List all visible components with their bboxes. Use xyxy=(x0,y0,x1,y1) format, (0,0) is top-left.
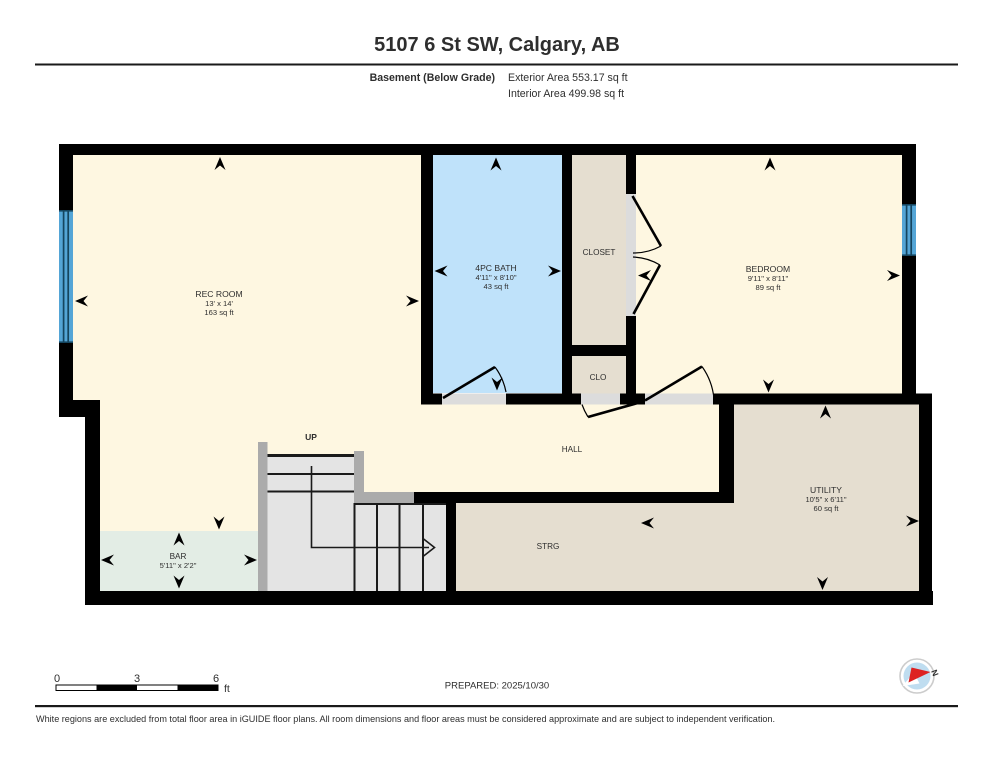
svg-text:4PC BATH: 4PC BATH xyxy=(475,263,516,273)
svg-text:STRG: STRG xyxy=(537,542,560,551)
svg-text:REC ROOM: REC ROOM xyxy=(195,289,242,299)
svg-text:BAR: BAR xyxy=(170,552,187,561)
svg-text:9'11" x 8'11": 9'11" x 8'11" xyxy=(748,274,789,283)
svg-text:60 sq ft: 60 sq ft xyxy=(814,504,840,513)
svg-text:PREPARED: 2025/10/30: PREPARED: 2025/10/30 xyxy=(445,681,549,692)
svg-text:5'11" x 2'2": 5'11" x 2'2" xyxy=(160,561,197,570)
svg-text:6: 6 xyxy=(213,673,219,685)
svg-text:3: 3 xyxy=(134,673,140,685)
svg-text:CLO: CLO xyxy=(590,373,607,382)
svg-text:CLOSET: CLOSET xyxy=(583,248,616,257)
svg-text:BEDROOM: BEDROOM xyxy=(746,264,790,274)
svg-text:White regions are excluded fro: White regions are excluded from total fl… xyxy=(36,714,775,724)
svg-text:89 sq ft: 89 sq ft xyxy=(756,283,782,292)
svg-text:0: 0 xyxy=(54,673,60,685)
svg-text:UP: UP xyxy=(305,432,317,442)
svg-text:Exterior Area 553.17 sq ft: Exterior Area 553.17 sq ft xyxy=(508,72,628,84)
svg-text:UTILITY: UTILITY xyxy=(810,485,842,495)
svg-text:ft: ft xyxy=(224,683,230,695)
svg-text:5107 6 St SW, Calgary, AB: 5107 6 St SW, Calgary, AB xyxy=(374,34,620,56)
svg-text:4'11" x 8'10": 4'11" x 8'10" xyxy=(475,273,516,282)
svg-text:163 sq ft: 163 sq ft xyxy=(204,308,234,317)
svg-text:43 sq ft: 43 sq ft xyxy=(484,282,510,291)
svg-text:10'5" x 6'11": 10'5" x 6'11" xyxy=(805,495,846,504)
svg-text:HALL: HALL xyxy=(562,445,583,454)
svg-text:13' x 14': 13' x 14' xyxy=(205,299,233,308)
svg-text:Basement (Below Grade): Basement (Below Grade) xyxy=(370,72,495,84)
svg-text:Interior Area 499.98 sq ft: Interior Area 499.98 sq ft xyxy=(508,88,624,100)
